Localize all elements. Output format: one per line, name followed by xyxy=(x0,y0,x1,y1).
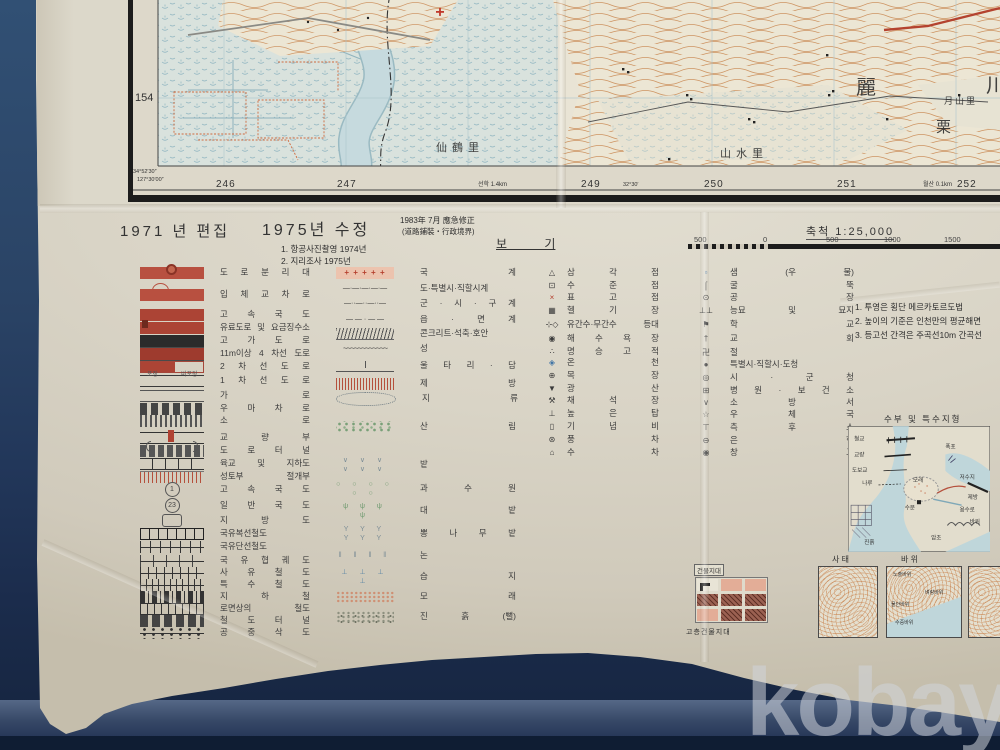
landcover-swatch-icon: ‖ ‖ ‖ ‖ xyxy=(336,550,394,562)
symbol-glyph: Y Y Y Y Y Y xyxy=(336,525,394,543)
buildings-diagram xyxy=(695,577,768,623)
legend-line-symbol-icon xyxy=(140,390,204,402)
symbol-glyph: ☆ xyxy=(702,411,709,419)
svg-text:진흙: 진흙 xyxy=(864,538,874,546)
legend-row-label: 명 승 고 적 xyxy=(567,347,659,356)
legend-row-label: 읍 · 면 계 xyxy=(420,315,516,324)
legend-row: ⌂ 수 차 xyxy=(543,446,661,459)
minimap-rocks: 노출바위 벼랑바위 물안바위 수중바위 xyxy=(886,566,962,638)
legend-row: 교 량 부 xyxy=(140,431,312,444)
large-hanja: 栗 xyxy=(936,120,951,136)
legend-row-label: 기 념 비 xyxy=(567,422,659,431)
legend-row: ▫ 샘 (우 물) xyxy=(698,266,856,279)
legend-row: ⊙ 공 장 xyxy=(698,291,856,304)
legend-row-label: 학 교 xyxy=(730,320,854,329)
legend-row-label: 모 래 xyxy=(420,592,516,601)
legend-row-label: 울 타 리 · 담 xyxy=(420,361,516,370)
legend-row: ◈ 온 천 xyxy=(543,356,661,369)
legend-row-label: 헬 기 장 xyxy=(567,306,659,315)
grid-number: 247 xyxy=(337,179,357,190)
legend-row: ⊹◇ 유간수·무간수 등대 xyxy=(543,318,661,331)
survey-note-1: 1. 항공사진촬영 1974년 xyxy=(281,243,366,255)
legend-row: + + + + + 국 계 xyxy=(336,266,518,279)
buildings-diagram-bottom-label: 고층건물지대 xyxy=(686,627,731,637)
point-symbol-icon: ▯ xyxy=(543,421,561,433)
legend-row-label: 고 가 도 로 xyxy=(220,336,310,345)
legend-row: ~~~~~~~~~~~~ 성 xyxy=(336,342,518,355)
legend-row: ⊕ 목 장 xyxy=(543,369,661,382)
legend-line-symbol-icon xyxy=(140,458,204,470)
legend-row: 11m이상 4 차선 도로 xyxy=(140,347,312,360)
legend-row-label: 도 로 분 리 대 xyxy=(220,268,310,277)
svg-text:저수지: 저수지 xyxy=(960,473,975,481)
legend-row: 입 체 교 차 로 xyxy=(140,288,312,301)
legend-row: ψ ψ ψ ψ 대 밭 xyxy=(336,504,518,517)
point-symbol-icon: ⚒ xyxy=(543,395,561,407)
legend-row-label: 풍 차 xyxy=(567,435,659,444)
legend-line-symbol-icon xyxy=(140,615,204,627)
corner-latitude: 34°52′30″ xyxy=(133,169,157,175)
building-block xyxy=(721,609,742,621)
photo-of-topographic-map: { "photo": { "watermark": "kobay" }, "ma… xyxy=(0,0,1000,750)
legend-row-label: 소 방 서 xyxy=(730,398,854,407)
emergency-revision-line1: 1983年 7月 應急修正 xyxy=(400,215,475,226)
legend-row-label: 대 밭 xyxy=(420,506,516,515)
legend-line-symbol-icon xyxy=(140,541,204,553)
landcover-swatch-icon: ψ ψ ψ ψ xyxy=(336,505,394,517)
legend-row-label: 교 량 부 xyxy=(220,433,310,442)
point-symbol-icon: ◈ xyxy=(543,357,561,369)
legend-row-label: 고 속 국 도 xyxy=(220,310,310,319)
building-block xyxy=(745,609,766,621)
legend-row: 소 로 xyxy=(140,414,312,427)
point-symbol-icon: ⊛ xyxy=(543,434,561,446)
scale-tick: 1000 xyxy=(884,235,901,244)
legend-row: 고 가 도 로 xyxy=(140,334,312,347)
symbol-glyph: 卍 xyxy=(702,349,710,357)
rock-label: 수중바위 xyxy=(895,619,913,626)
scale-bar xyxy=(688,244,1000,249)
legend-row-label: 교 회 xyxy=(730,334,854,343)
svg-text:모래: 모래 xyxy=(913,476,923,484)
boundary-symbol-icon xyxy=(336,328,394,340)
svg-text:바위: 바위 xyxy=(970,517,980,525)
grid-number: 249 xyxy=(581,179,601,190)
point-symbol-icon: ▦ xyxy=(543,305,561,317)
revision-year: 1975년 수정 xyxy=(262,216,370,240)
legend-row: 모 래 xyxy=(336,590,518,603)
legend-line-symbol-icon: 1 xyxy=(140,484,204,496)
legend-row: ⊛ 풍 차 xyxy=(543,433,661,446)
legend-row-label: 사 유 철 도 xyxy=(220,568,310,577)
legend-row: ◎ 시 · 군 청 xyxy=(698,371,856,384)
legend-row: ⊥ ⊥ ⊥ ⊥ 습 지 xyxy=(336,570,518,583)
point-symbol-icon: ⌠ xyxy=(698,280,714,292)
symbol-glyph: ◉ xyxy=(703,449,710,457)
legend-row-label: 시 · 군 청 xyxy=(730,373,854,382)
legend-row: 콘크리트·석축·호안 xyxy=(336,327,518,340)
svg-text:나루: 나루 xyxy=(862,479,872,487)
legend-line-symbol-icon xyxy=(140,322,204,334)
minimap-label-rocks: 바 위 xyxy=(901,554,918,565)
svg-text:암초: 암초 xyxy=(931,534,941,542)
legend-row-label: 1 차 선 도 로 xyxy=(220,376,310,385)
legend-line-symbol-icon xyxy=(140,309,204,321)
corner-longitude: 127°30′00″ xyxy=(137,177,164,183)
landcover-swatch-icon: ∨ ∨ ∨ ∨ ∨ ∨ xyxy=(336,459,394,471)
legend-row-label: 특별시·직할시·도청 xyxy=(730,360,854,369)
legend-row: ⊥ 높 은 탑 xyxy=(543,407,661,420)
legend-row: ☆ 우 체 국 xyxy=(698,408,856,421)
legend-row-label: 일 반 국 도 xyxy=(220,501,310,510)
scale-tick: 500 xyxy=(694,235,707,244)
symbol-glyph xyxy=(162,514,182,527)
legend-row-label: 가 로 xyxy=(220,391,310,400)
place-name: 月山里 xyxy=(944,96,977,106)
point-symbol-icon: ◎ xyxy=(698,372,714,384)
svg-text:수문: 수문 xyxy=(905,504,915,511)
legend-row-label: 은 행 xyxy=(730,436,854,445)
boundary-symbol-icon: —·—·—·—·— xyxy=(336,283,394,295)
legend-row-label: 목 장 xyxy=(567,371,659,380)
legend-row-label: 해 수 욕 장 xyxy=(567,334,659,343)
legend-row: △ 삼 각 점 xyxy=(543,266,661,279)
longitude-tick: 32°30′ xyxy=(623,182,638,188)
legend-row: 국유단선철도 xyxy=(140,540,312,553)
legend-row-label: 2 차 선 도 로 xyxy=(220,362,310,371)
point-symbol-icon: ⊹◇ xyxy=(543,319,561,331)
legend-row: 1 차 선 도 로 xyxy=(140,374,312,387)
legend-line-symbol-icon xyxy=(140,335,204,347)
hydro-diagram: 철교 교량 도보교 나루 폭포 저수지 모래 제방 용수로 수문 진흙 바위 암… xyxy=(848,426,990,557)
place-name: 仙鶴里 xyxy=(436,140,484,154)
symbol-glyph: ∴ xyxy=(549,348,554,356)
rock-label: 물안바위 xyxy=(891,601,909,608)
legend-row: 공 중 삭 도 xyxy=(140,626,312,639)
point-symbol-icon: ◉ xyxy=(698,447,714,459)
symbol-glyph: — — · — — xyxy=(346,316,384,323)
legend-row-label: 온 천 xyxy=(567,358,659,367)
landcover-swatch-icon: ○ ○ ○ ○ ○ ○ xyxy=(336,483,394,495)
hydro-diagram-title: 수부 및 특수지형 xyxy=(884,413,961,425)
legend-row-label: 지 방 도 xyxy=(220,516,310,525)
legend-row: ‖ ‖ ‖ ‖ 논 xyxy=(336,549,518,562)
symbol-glyph: ψ ψ ψ ψ xyxy=(336,502,394,520)
legend-row: 울 타 리 · 담 xyxy=(336,359,518,372)
map-graphic: 仙鶴里 山水里 月山里 麗 栗 川 154 34°52′30″ xyxy=(128,0,1000,204)
grid-row-label: 154 xyxy=(135,92,153,104)
symbol-glyph: ⊕ xyxy=(549,372,556,380)
watermark: kobay xyxy=(746,648,1000,750)
building-block xyxy=(745,579,766,591)
legend-row-label: 지 하 철 xyxy=(220,592,310,601)
point-symbol-icon: ⊙ xyxy=(698,292,714,304)
point-symbol-icon: ∨ xyxy=(698,397,714,409)
legend-row: ● 특별시·직할시·도청 xyxy=(698,358,856,371)
legend-line-symbol-icon xyxy=(140,403,204,415)
point-symbol-icon: △ xyxy=(543,267,561,279)
point-symbol-icon: ⊥ xyxy=(543,408,561,420)
legend-row: —·—·—·—·— 도·특별시·직할시계 xyxy=(336,282,518,295)
legend-row-label: 굴 뚝 xyxy=(730,281,854,290)
legend-row-label: 밭 xyxy=(420,460,516,469)
building-block xyxy=(745,594,766,606)
legend-row: 성토부 절개부 xyxy=(140,470,312,483)
legend-row-label: 산 림 xyxy=(420,422,516,431)
legend-row-label: 유료도로 및 요금징수소 xyxy=(220,323,310,332)
legend-row: ▦ 헬 기 장 xyxy=(543,304,661,317)
symbol-glyph: ⊤ xyxy=(703,424,710,432)
legend-row: 가 로 xyxy=(140,389,312,402)
symbol-glyph: ⊞ xyxy=(703,387,710,395)
svg-text:철교: 철교 xyxy=(854,434,864,442)
building-block xyxy=(697,579,718,591)
symbol-glyph: ⊛ xyxy=(549,436,556,444)
legend-row-label: 높 은 탑 xyxy=(567,409,659,418)
large-hanja-partial: 川 xyxy=(986,75,1000,97)
point-symbol-icon: ⊤ xyxy=(698,422,714,434)
point-symbol-icon: ⚑ xyxy=(698,319,714,331)
minimap-label-landslide: 사 태 xyxy=(832,554,849,565)
buildings-diagram-top-label: 건물지대 xyxy=(694,564,724,576)
symbol-glyph: ◉ xyxy=(549,335,556,343)
legend-title: 보 기 xyxy=(496,235,555,252)
legend-line-symbol-icon xyxy=(140,567,204,579)
destination-note: 선학 1.4km xyxy=(478,180,507,188)
legend-row-label: 국 유 협 궤 도 xyxy=(220,556,310,565)
symbol-glyph: ⊡ xyxy=(549,282,556,290)
point-symbol-icon: ⊕ xyxy=(543,370,561,382)
legend-row: ⚑ 학 교 xyxy=(698,318,856,331)
legend-row: 유료도로 및 요금징수소 xyxy=(140,321,312,334)
boundary-symbol-icon xyxy=(336,378,394,390)
map-note-projection: 1. 투영은 횡단 메르카토르도법 xyxy=(855,301,963,313)
symbol-glyph: ◈ xyxy=(549,359,555,367)
legend-row: × 표 고 점 xyxy=(543,291,661,304)
legend-line-symbol-icon xyxy=(140,471,204,483)
legend-line-symbol-icon xyxy=(140,603,204,615)
symbol-glyph: ◎ xyxy=(703,374,710,382)
point-symbol-icon: † xyxy=(698,333,714,345)
legend-row-label: 콘크리트·석축·호안 xyxy=(420,329,516,338)
legend-row-label: 공 장 xyxy=(730,293,854,302)
legend-row-label: 성 xyxy=(420,344,516,353)
minimap-partial xyxy=(968,566,1000,638)
topographic-map-extract: 仙鶴里 山水里 月山里 麗 栗 川 154 34°52′30″ xyxy=(128,0,1000,204)
building-block xyxy=(721,594,742,606)
symbol-glyph: ⊥ ⊥ ⊥ ⊥ xyxy=(336,568,394,586)
legend-row-label: 도·특별시·직할시계 xyxy=(420,284,516,293)
legend-row-label: 논 xyxy=(420,551,516,560)
legend-row-label: 표 고 점 xyxy=(567,293,659,302)
grid-number: 252 xyxy=(957,179,977,190)
legend-line-symbol-icon: 23 xyxy=(140,500,204,512)
symbol-glyph: ▫ xyxy=(705,269,708,277)
legend-row: ∨ ∨ ∨ ∨ ∨ ∨ 밭 xyxy=(336,458,518,471)
legend-row-label: 광 산 xyxy=(567,384,659,393)
landcover-swatch-icon xyxy=(336,591,394,603)
legend-row-label: 유간수·무간수 등대 xyxy=(567,320,659,329)
svg-text:제방: 제방 xyxy=(968,493,978,501)
edition-year: 1971 년 편집 xyxy=(120,220,230,241)
landcover-swatch-icon xyxy=(336,421,394,433)
legend-line-symbol-icon xyxy=(140,515,204,527)
symbol-glyph: ⚒ xyxy=(548,397,555,405)
map-note-datum: 2. 높이의 기준은 인천만의 평균해면 xyxy=(855,315,981,327)
point-symbol-icon: ● xyxy=(698,359,714,371)
legend-row: 제 방 xyxy=(336,377,518,390)
legend-row-label: 진 흙 (뻘) xyxy=(420,612,516,621)
legend-row: Y Y Y Y Y Y 뽕 나 무 밭 xyxy=(336,527,518,540)
legend-row-label: 특 수 철 도 xyxy=(220,580,310,589)
point-symbol-icon: ⊞ xyxy=(698,385,714,397)
emergency-revision-line2: (道路鋪裝・行政境界) xyxy=(402,226,475,237)
symbol-glyph: ‖ ‖ ‖ ‖ xyxy=(336,551,394,560)
boundary-symbol-icon xyxy=(336,360,394,372)
minimap-landslide xyxy=(818,566,878,638)
symbol-glyph: —··—··—··— xyxy=(344,300,386,307)
legend-row-label: 지 류 xyxy=(422,394,518,403)
legend-line-symbol-icon xyxy=(140,347,204,361)
legend-row-label: 제 방 xyxy=(420,379,516,388)
grid-number: 246 xyxy=(216,179,236,190)
legend-line-symbol-icon xyxy=(140,267,204,279)
legend-row: 지 방 도 xyxy=(140,514,312,527)
legend-row: —··—··—··— 군 · 시 · 구 계 xyxy=(336,297,518,310)
legend-row: 산 림 xyxy=(336,420,518,433)
legend-row: ○ ○ ○ ○ ○ ○ 과 수 원 xyxy=(336,482,518,495)
legend-row: ⊤ 측 후 소 xyxy=(698,421,856,434)
legend-row-label: 수 차 xyxy=(567,448,659,457)
large-hanja: 麗 xyxy=(856,77,876,99)
point-symbol-icon: ⊡ xyxy=(543,280,561,292)
legend-line-symbol-icon xyxy=(140,591,204,603)
legend-row: ⚒ 채 석 장 xyxy=(543,394,661,407)
legend-row-label: 측 후 소 xyxy=(730,423,854,432)
legend-row-label: 육교 및 지하도 xyxy=(220,459,310,468)
legend-line-symbol-icon xyxy=(140,415,204,427)
legend-line-symbol-icon xyxy=(140,579,204,591)
legend-row-label: 철 도 터 널 xyxy=(220,616,310,625)
symbol-glyph: ▼ xyxy=(548,385,556,393)
legend-row-label: 능묘 및 묘지 xyxy=(730,306,854,315)
legend-row: 도 로 터 널 xyxy=(140,444,312,457)
point-symbol-icon: ⌂ xyxy=(543,447,561,459)
point-symbol-icon: ▫ xyxy=(698,267,714,279)
legend-row-label: 삼 각 점 xyxy=(567,268,659,277)
symbol-glyph: ∨ xyxy=(703,399,709,407)
legend-row-label: 수 준 점 xyxy=(567,281,659,290)
point-symbol-icon: ⊖ xyxy=(698,435,714,447)
unpaved-note: 비포장 xyxy=(181,369,198,378)
landcover-swatch-icon: Y Y Y Y Y Y xyxy=(336,528,394,540)
paper-crease xyxy=(40,204,1000,213)
legend-row: 23 일 반 국 도 xyxy=(140,499,312,512)
legend-row-label: 도 로 터 널 xyxy=(220,446,310,455)
symbol-glyph: × xyxy=(550,294,555,302)
legend-row: † 교 회 xyxy=(698,332,856,345)
legend-row-label: 로면상의 철도 xyxy=(220,604,310,613)
legend-row-label: 국유단선철도 xyxy=(220,542,310,551)
legend-line-symbol-icon xyxy=(140,445,204,457)
symbol-glyph: 23 xyxy=(165,498,180,513)
legend-row: 고 속 국 도 xyxy=(140,308,312,321)
symbol-glyph: ⌠ xyxy=(704,282,709,290)
symbol-glyph: ⊹◇ xyxy=(546,321,559,329)
map-sheet-left-margin xyxy=(37,0,129,206)
legend-row: ⊥⊥ 능묘 및 묘지 xyxy=(698,304,856,317)
symbol-glyph: + + + + + xyxy=(344,269,385,277)
symbol-glyph: ● xyxy=(704,361,709,369)
legend-row-label: 우 체 국 xyxy=(730,410,854,419)
symbol-glyph: —·—·—·—·— xyxy=(343,285,387,292)
symbol-glyph: 1 xyxy=(165,482,180,497)
legend-row-label: 채 석 장 xyxy=(567,396,659,405)
grid-number: 251 xyxy=(837,179,857,190)
legend-row-label: 입 체 교 차 로 xyxy=(220,290,310,299)
svg-text:용수로: 용수로 xyxy=(960,506,975,513)
rock-label: 노출바위 xyxy=(893,571,911,578)
legend-row-label: 소 로 xyxy=(220,416,310,425)
legend-row-label: 국유복선철도 xyxy=(220,529,310,538)
legend-row: 1 고 속 국 도 xyxy=(140,483,312,496)
svg-text:폭포: 폭포 xyxy=(945,443,955,450)
scale-tick: 0 xyxy=(763,235,767,244)
point-symbol-icon: ⊥⊥ xyxy=(698,305,714,317)
symbol-glyph: ▯ xyxy=(550,423,554,431)
point-symbol-icon: ☆ xyxy=(698,409,714,421)
legend-row-label: 습 지 xyxy=(420,572,516,581)
point-symbol-icon: ▼ xyxy=(543,383,561,395)
legend-row-label: 성토부 절개부 xyxy=(220,472,310,481)
legend-row: 육교 및 지하도 xyxy=(140,457,312,470)
symbol-glyph: ∨ ∨ ∨ ∨ ∨ ∨ xyxy=(336,456,394,474)
legend-row-label: 과 수 원 xyxy=(420,484,516,493)
rock-label: 벼랑바위 xyxy=(925,589,943,596)
svg-text:도보교: 도보교 xyxy=(852,467,867,474)
legend-row-label: 창 고 xyxy=(730,448,854,457)
scale-label: 축척 1:25,000 xyxy=(806,223,894,240)
place-name: 山水里 xyxy=(720,147,768,160)
building-block xyxy=(721,579,742,591)
symbol-glyph: ~~~~~~~~~~~~ xyxy=(343,345,387,353)
map-sheet-paper: 仙鶴里 山水里 月山里 麗 栗 川 154 34°52′30″ xyxy=(0,0,1000,750)
symbol-glyph: ○ ○ ○ ○ ○ ○ xyxy=(336,480,394,498)
legend-line-symbol-icon xyxy=(140,528,204,540)
symbol-glyph: ⊖ xyxy=(703,437,710,445)
boundary-symbol-icon: — — · — — xyxy=(336,314,394,326)
landcover-swatch-icon xyxy=(336,392,396,406)
legend-row: ◉ 창 고 xyxy=(698,446,856,459)
legend-row: 국유복선철도 xyxy=(140,527,312,540)
hydro-sluice xyxy=(917,500,921,504)
legend-row: — — · — — 읍 · 면 계 xyxy=(336,313,518,326)
building-block xyxy=(697,609,718,621)
legend-row-label: 고 속 국 도 xyxy=(220,485,310,494)
grid-number: 250 xyxy=(704,179,724,190)
map-content: 仙鶴里 山水里 月山里 麗 栗 川 xyxy=(158,0,1000,170)
paved-note: 포장 xyxy=(147,369,158,378)
legend-line-symbol-icon xyxy=(140,555,204,567)
legend-row: ▯ 기 념 비 xyxy=(543,420,661,433)
legend-row-label: 병 원 · 보 건 소 xyxy=(730,386,854,395)
legend-row: 지 류 xyxy=(336,392,518,405)
landcover-swatch-icon xyxy=(336,611,394,623)
scale-tick: 500 xyxy=(826,235,839,244)
symbol-glyph: ⚑ xyxy=(702,321,709,329)
legend-row-label: 공 중 삭 도 xyxy=(220,628,310,637)
destination-note: 월산 0.1km xyxy=(923,180,952,188)
